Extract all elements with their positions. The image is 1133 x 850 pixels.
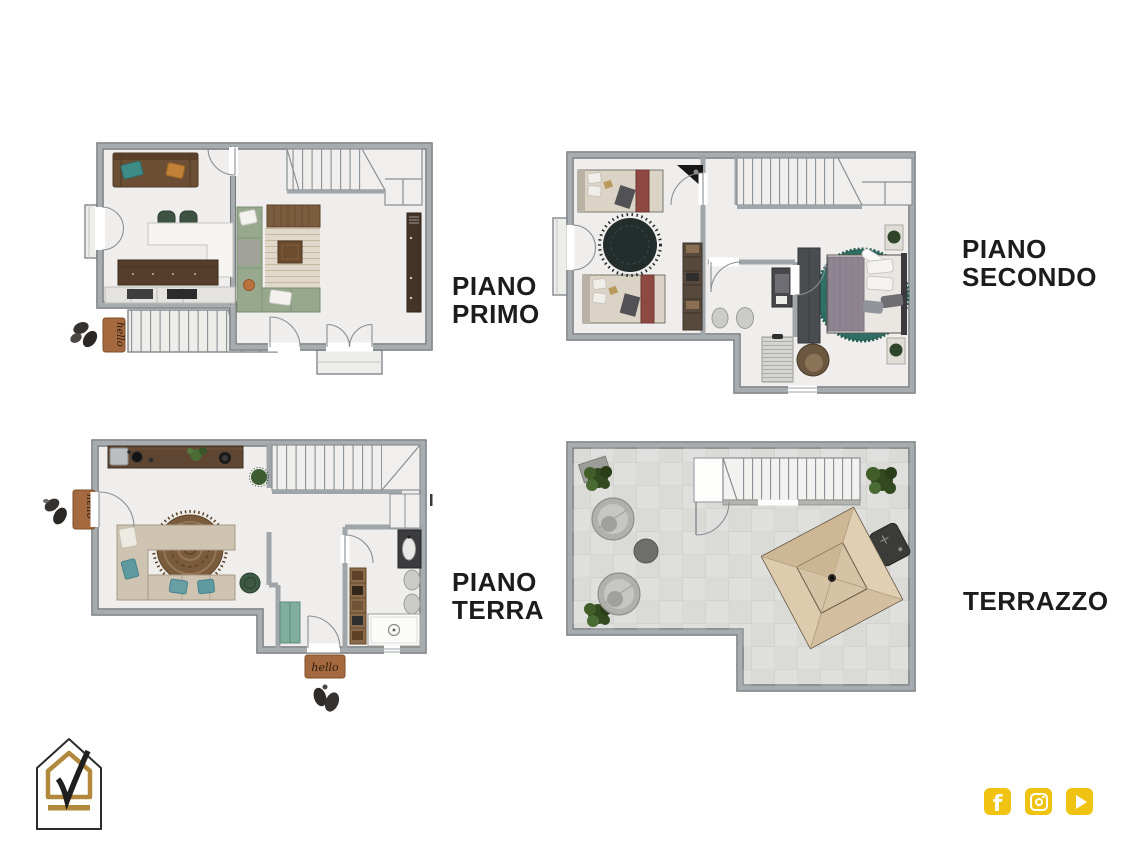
agency-logo [30, 733, 110, 835]
social-icons: f [984, 788, 1093, 815]
floorplan-piano-terra: hello hello [20, 435, 445, 727]
ottoman [634, 539, 658, 563]
radiator-rug [762, 334, 793, 382]
facebook-icon: f [984, 788, 1011, 815]
round-lounge-chair [592, 498, 634, 540]
teal-console [280, 602, 300, 643]
floor-label-terrazzo: TERRAZZO [963, 531, 1109, 671]
twin-bed [583, 275, 665, 323]
entry-porch [317, 350, 382, 374]
ladder-shelf [350, 568, 366, 644]
staircase [737, 158, 912, 209]
floor-label-piano-secondo: PIANOSECONDO [962, 179, 1097, 347]
wardrobe-shelf [683, 243, 702, 330]
stray-mark [430, 494, 433, 506]
doormat: hello [103, 318, 125, 352]
window [788, 386, 817, 395]
shoes [311, 685, 341, 714]
window [384, 646, 400, 655]
balcony [553, 218, 568, 295]
doormat: hello [305, 655, 345, 678]
tv-wall-panel [267, 205, 320, 227]
floorplan-piano-primo: hello [55, 138, 440, 383]
instagram-icon [1025, 788, 1052, 815]
kitchen-counter [108, 446, 243, 468]
floorplan-sheet: hello [0, 0, 1133, 850]
bush [866, 467, 897, 494]
floorplan-piano-secondo [545, 145, 935, 405]
brown-sofa [113, 153, 198, 187]
shoes [42, 496, 69, 527]
tall-cabinet [407, 213, 421, 312]
staircase [694, 458, 860, 506]
svg-text:hello: hello [311, 661, 339, 674]
floorplan-terrazzo [545, 440, 935, 695]
youtube-icon [1066, 788, 1093, 815]
svg-text:hello: hello [114, 322, 125, 347]
twin-bed [578, 170, 663, 212]
house-check-icon [37, 739, 101, 829]
wardrobe [798, 248, 820, 343]
nightstand [887, 338, 905, 364]
floor-label-piano-primo: PIANOPRIMO [452, 216, 540, 384]
floor-label-piano-terra: PIANOTERRA [452, 512, 544, 680]
double-bed [827, 248, 907, 335]
media-console [105, 260, 235, 303]
shoes [69, 320, 101, 350]
nightstand [885, 225, 903, 250]
coffee-table [278, 241, 302, 263]
pouf [240, 573, 260, 593]
